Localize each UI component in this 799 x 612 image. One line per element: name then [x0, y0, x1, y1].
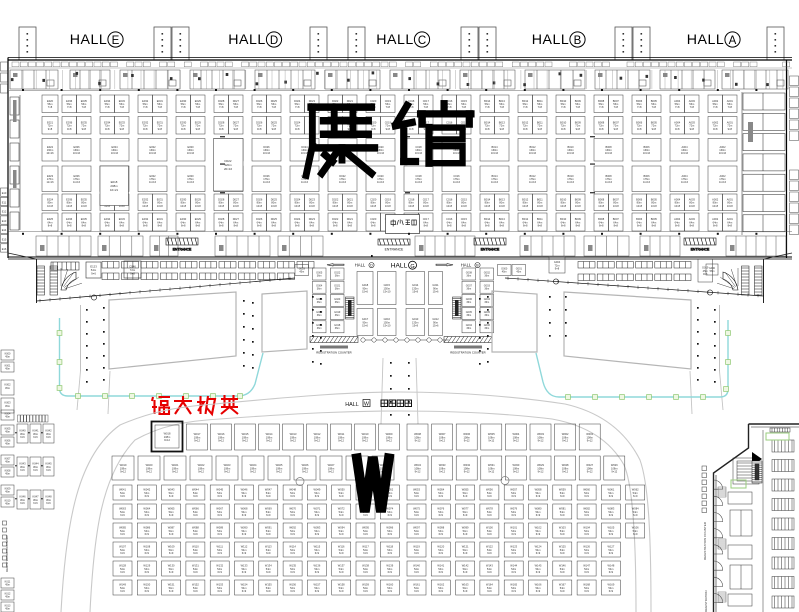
svg-text:6×9: 6×9: [266, 589, 271, 593]
svg-text:6×9: 6×9: [584, 551, 589, 555]
svg-text:15×6: 15×6: [362, 324, 368, 328]
svg-text:9×12: 9×12: [439, 439, 445, 443]
svg-text:6×9: 6×9: [120, 570, 125, 574]
svg-text:6×9: 6×9: [487, 513, 492, 517]
svg-text:7×8: 7×8: [447, 105, 452, 109]
svg-text:6×6: 6×6: [46, 435, 51, 439]
svg-text:10×16: 10×16: [111, 151, 119, 155]
svg-text:6×9: 6×9: [511, 494, 516, 498]
svg-text:6×9: 6×9: [388, 589, 393, 593]
svg-text:36m: 36m: [317, 274, 322, 277]
svg-text:E12: E12: [2, 210, 7, 214]
svg-text:6×9: 6×9: [193, 494, 198, 498]
svg-text:6×6: 6×6: [33, 435, 38, 439]
svg-text:9×12: 9×12: [314, 439, 320, 443]
svg-text:6×9: 6×9: [536, 589, 541, 593]
svg-text:9×8: 9×8: [181, 127, 186, 131]
svg-text:10×8: 10×8: [309, 204, 315, 208]
svg-text:11×16: 11×16: [643, 180, 651, 184]
svg-text:6×9: 6×9: [560, 551, 565, 555]
svg-text:36m: 36m: [335, 327, 340, 330]
svg-text:8×8: 8×8: [196, 224, 201, 228]
svg-text:6×9: 6×9: [217, 532, 222, 536]
svg-text:6×9: 6×9: [560, 589, 565, 593]
svg-text:6×9: 6×9: [145, 532, 150, 536]
svg-text:HALL: HALL: [345, 402, 359, 408]
svg-text:20×16: 20×16: [224, 167, 233, 171]
svg-text:8×8: 8×8: [158, 224, 163, 228]
svg-text:8×8: 8×8: [576, 224, 581, 228]
svg-text:7×8: 7×8: [675, 105, 680, 109]
svg-text:45m: 45m: [5, 490, 10, 493]
svg-text:6×9: 6×9: [315, 551, 320, 555]
svg-text:6×9: 6×9: [536, 513, 541, 517]
svg-text:E14: E14: [2, 228, 7, 232]
svg-text:10×16: 10×16: [719, 151, 727, 155]
svg-text:45m: 45m: [5, 430, 10, 433]
svg-text:6×9: 6×9: [145, 551, 150, 555]
svg-text:9×12: 9×12: [415, 470, 421, 474]
svg-text:11×16: 11×16: [529, 180, 537, 184]
svg-text:9×8: 9×8: [555, 267, 560, 271]
svg-text:E16: E16: [2, 247, 7, 251]
svg-text:6×9: 6×9: [217, 570, 222, 574]
svg-text:D: D: [370, 264, 373, 268]
svg-text:9×12: 9×12: [386, 439, 392, 443]
svg-text:10×8: 10×8: [537, 204, 543, 208]
svg-text:10×8: 10×8: [385, 204, 391, 208]
svg-text:6×9: 6×9: [120, 513, 125, 517]
svg-text:6×6: 6×6: [20, 435, 25, 439]
svg-text:6×9: 6×9: [363, 570, 368, 574]
svg-text:9×8: 9×8: [67, 127, 72, 131]
svg-text:8×8: 8×8: [523, 224, 528, 228]
svg-text:10×16: 10×16: [263, 151, 271, 155]
svg-text:9×12: 9×12: [172, 470, 178, 474]
svg-text:6×9: 6×9: [120, 551, 125, 555]
svg-text:10×8: 10×8: [218, 204, 224, 208]
svg-text:11×16: 11×16: [719, 180, 727, 184]
svg-text:6×9: 6×9: [584, 589, 589, 593]
svg-text:11×16: 11×16: [567, 180, 575, 184]
svg-text:7×8: 7×8: [485, 105, 490, 109]
svg-text:9×8: 9×8: [409, 127, 414, 131]
svg-text:6×9: 6×9: [487, 589, 492, 593]
svg-text:9×8: 9×8: [614, 127, 619, 131]
svg-text:6×9: 6×9: [169, 532, 174, 536]
svg-text:6×9: 6×9: [315, 513, 320, 517]
svg-text:45m: 45m: [5, 386, 10, 390]
svg-text:6×6: 6×6: [46, 468, 51, 472]
svg-text:8×8: 8×8: [333, 224, 338, 228]
svg-text:9×12: 9×12: [218, 439, 224, 443]
svg-text:6×9: 6×9: [463, 513, 468, 517]
svg-text:6×6: 6×6: [20, 501, 25, 505]
svg-text:9×12: 9×12: [146, 470, 152, 474]
svg-text:8×8: 8×8: [637, 224, 642, 228]
svg-text:36m: 36m: [335, 301, 340, 304]
svg-text:10×16: 10×16: [643, 151, 651, 155]
svg-text:7×8: 7×8: [196, 105, 201, 109]
svg-text:10×16: 10×16: [149, 151, 157, 155]
svg-text:36m: 36m: [484, 288, 489, 291]
svg-text:9×8: 9×8: [143, 127, 148, 131]
svg-text:9×8: 9×8: [675, 127, 680, 131]
svg-text:7×8: 7×8: [637, 105, 642, 109]
svg-text:11×16: 11×16: [187, 180, 195, 184]
svg-text:9×12: 9×12: [562, 470, 568, 474]
svg-text:6×9: 6×9: [242, 494, 247, 498]
svg-text:8×8: 8×8: [599, 224, 604, 228]
svg-text:6×6: 6×6: [20, 468, 25, 472]
svg-text:36m: 36m: [317, 314, 322, 317]
svg-text:8×8: 8×8: [219, 224, 224, 228]
svg-text:10×16: 10×16: [681, 151, 689, 155]
svg-text:W: W: [364, 402, 369, 408]
svg-text:E15: E15: [2, 238, 7, 242]
svg-text:6×9: 6×9: [120, 589, 125, 593]
svg-text:6×6: 6×6: [46, 501, 51, 505]
svg-text:8×8: 8×8: [713, 224, 718, 228]
svg-text:9×12: 9×12: [164, 438, 170, 442]
svg-text:6×9: 6×9: [633, 494, 638, 498]
svg-text:9×8: 9×8: [371, 127, 376, 131]
svg-text:45m: 45m: [516, 270, 521, 273]
svg-text:E: E: [112, 35, 120, 47]
svg-text:6×9: 6×9: [290, 532, 295, 536]
svg-text:11×16: 11×16: [681, 180, 689, 184]
svg-text:6×9: 6×9: [217, 589, 222, 593]
svg-text:8×8: 8×8: [424, 224, 429, 228]
svg-text:6×9: 6×9: [536, 494, 541, 498]
svg-text:9×8: 9×8: [485, 127, 490, 131]
svg-text:6×9: 6×9: [120, 494, 125, 498]
svg-text:9×8: 9×8: [257, 127, 262, 131]
svg-text:6×9: 6×9: [193, 532, 198, 536]
svg-text:10×16: 10×16: [605, 151, 613, 155]
svg-text:A: A: [729, 35, 737, 47]
svg-text:36m: 36m: [484, 274, 489, 277]
svg-text:6×9: 6×9: [584, 570, 589, 574]
svg-text:6×9: 6×9: [633, 532, 638, 536]
svg-text:7×8: 7×8: [614, 105, 619, 109]
svg-text:6×9: 6×9: [463, 551, 468, 555]
svg-text:9×12: 9×12: [513, 470, 519, 474]
svg-text:ENTRANCE: ENTRANCE: [173, 248, 192, 252]
svg-text:10×16: 10×16: [415, 151, 423, 155]
svg-text:45m: 45m: [5, 502, 10, 505]
svg-text:6×9: 6×9: [363, 589, 368, 593]
svg-text:36m: 36m: [317, 288, 322, 291]
svg-text:9×12: 9×12: [290, 439, 296, 443]
svg-text:11×16: 11×16: [453, 180, 461, 184]
svg-text:6×9: 6×9: [584, 532, 589, 536]
svg-text:8×8: 8×8: [500, 224, 505, 228]
svg-text:E11: E11: [2, 200, 7, 204]
svg-text:9×8: 9×8: [272, 127, 277, 131]
svg-text:6×9: 6×9: [439, 570, 444, 574]
svg-text:9×12: 9×12: [611, 470, 617, 474]
svg-text:6×9: 6×9: [414, 513, 419, 517]
svg-text:8×8: 8×8: [295, 224, 300, 228]
svg-text:6×9: 6×9: [487, 494, 492, 498]
svg-text:10×8: 10×8: [522, 204, 528, 208]
svg-text:10×8: 10×8: [446, 204, 452, 208]
svg-text:10×8: 10×8: [727, 204, 733, 208]
svg-text:6×9: 6×9: [388, 551, 393, 555]
svg-text:9×12: 9×12: [198, 470, 204, 474]
svg-text:REGISTRATION COUNTER: REGISTRATION COUNTER: [5, 535, 9, 572]
svg-text:6×9: 6×9: [560, 570, 565, 574]
svg-text:9×12: 9×12: [194, 439, 200, 443]
svg-text:HALL: HALL: [228, 32, 266, 48]
svg-text:9×12: 9×12: [328, 470, 334, 474]
svg-text:10×8: 10×8: [294, 204, 300, 208]
svg-text:6×9: 6×9: [290, 570, 295, 574]
svg-text:36m: 36m: [466, 301, 471, 304]
svg-text:45m: 45m: [5, 583, 10, 586]
svg-text:6×9: 6×9: [339, 513, 344, 517]
svg-text:6×9: 6×9: [315, 570, 320, 574]
svg-text:9×12: 9×12: [488, 439, 494, 443]
svg-text:8×8: 8×8: [310, 224, 315, 228]
svg-text:15×10: 15×10: [383, 290, 391, 294]
svg-text:6×9: 6×9: [463, 589, 468, 593]
svg-text:36m: 36m: [466, 274, 471, 277]
svg-text:6×9: 6×9: [511, 551, 516, 555]
svg-text:7×8: 7×8: [500, 105, 505, 109]
svg-text:10×8: 10×8: [332, 204, 338, 208]
svg-text:6×9: 6×9: [193, 589, 198, 593]
svg-text:6×9: 6×9: [266, 570, 271, 574]
svg-text:10×16: 10×16: [73, 151, 81, 155]
svg-text:6×9: 6×9: [487, 570, 492, 574]
svg-text:9×12: 9×12: [439, 470, 445, 474]
svg-text:9×8: 9×8: [523, 127, 528, 131]
svg-text:10×8: 10×8: [651, 204, 657, 208]
svg-text:6×9: 6×9: [560, 532, 565, 536]
svg-text:8×8: 8×8: [728, 224, 733, 228]
svg-text:E13: E13: [2, 219, 7, 223]
svg-text:9×8: 9×8: [637, 127, 642, 131]
svg-text:10×8: 10×8: [256, 204, 262, 208]
svg-text:6×9: 6×9: [193, 551, 198, 555]
svg-text:45m: 45m: [5, 367, 10, 370]
svg-text:10×8: 10×8: [461, 204, 467, 208]
svg-text:9×12: 9×12: [302, 470, 308, 474]
svg-text:6×9: 6×9: [536, 551, 541, 555]
svg-text:9×8: 9×8: [219, 127, 224, 131]
svg-text:9×12: 9×12: [538, 439, 544, 443]
svg-text:36m: 36m: [317, 301, 322, 304]
svg-text:9×6: 9×6: [91, 272, 96, 276]
svg-text:8×8: 8×8: [82, 224, 87, 228]
svg-text:6×9: 6×9: [145, 494, 150, 498]
svg-text:6×9: 6×9: [339, 570, 344, 574]
svg-text:8×8: 8×8: [652, 224, 657, 228]
svg-text:15×6: 15×6: [362, 290, 368, 294]
svg-text:HALL: HALL: [391, 263, 408, 270]
svg-text:10×16: 10×16: [377, 151, 385, 155]
svg-text:7×8: 7×8: [158, 105, 163, 109]
svg-text:10×8: 10×8: [674, 204, 680, 208]
svg-text:9×8: 9×8: [538, 127, 543, 131]
svg-text:9×8: 9×8: [120, 127, 125, 131]
svg-text:10×8: 10×8: [613, 204, 619, 208]
svg-text:9×8: 9×8: [82, 127, 87, 131]
svg-text:6×9: 6×9: [609, 513, 614, 517]
svg-text:9×12: 9×12: [120, 470, 126, 474]
svg-text:6×9: 6×9: [242, 532, 247, 536]
svg-text:6×9: 6×9: [560, 513, 565, 517]
svg-text:6×9: 6×9: [290, 513, 295, 517]
svg-text:6×9: 6×9: [388, 513, 393, 517]
svg-text:10×8: 10×8: [157, 204, 163, 208]
svg-text:10×8: 10×8: [271, 204, 277, 208]
svg-text:6×9: 6×9: [290, 551, 295, 555]
svg-text:9×8: 9×8: [386, 127, 391, 131]
svg-text:7×8: 7×8: [143, 105, 148, 109]
svg-text:9×12: 9×12: [250, 470, 256, 474]
svg-text:6×9: 6×9: [363, 532, 368, 536]
svg-text:8×8: 8×8: [105, 224, 110, 228]
svg-text:6×9: 6×9: [414, 494, 419, 498]
svg-text:6×6: 6×6: [33, 501, 38, 505]
svg-text:7×8: 7×8: [599, 105, 604, 109]
svg-text:6×9: 6×9: [511, 513, 516, 517]
svg-text:6×9: 6×9: [315, 532, 320, 536]
svg-text:10×16: 10×16: [187, 151, 195, 155]
svg-text:7×8: 7×8: [538, 105, 543, 109]
svg-text:HALL: HALL: [355, 263, 366, 268]
svg-text:8×8: 8×8: [675, 224, 680, 228]
svg-text:REGISTRATION: REGISTRATION: [704, 591, 708, 612]
svg-text:6×9: 6×9: [560, 494, 565, 498]
svg-text:6×9: 6×9: [339, 551, 344, 555]
svg-text:36m: 36m: [466, 288, 471, 291]
svg-text:36m: 36m: [484, 314, 489, 317]
svg-text:9×8: 9×8: [105, 127, 110, 131]
svg-text:6×9: 6×9: [169, 494, 174, 498]
svg-text:ENTRANCE: ENTRANCE: [385, 248, 404, 252]
svg-text:45m: 45m: [502, 270, 507, 273]
svg-text:36m: 36m: [466, 314, 471, 317]
svg-text:HALL: HALL: [70, 32, 108, 48]
svg-text:9×8: 9×8: [158, 127, 163, 131]
svg-text:6×9: 6×9: [266, 513, 271, 517]
svg-text:6×9: 6×9: [242, 589, 247, 593]
svg-text:45m: 45m: [5, 442, 10, 445]
svg-text:7×8: 7×8: [295, 105, 300, 109]
svg-text:G: G: [410, 264, 414, 270]
svg-text:8×8: 8×8: [485, 224, 490, 228]
svg-text:7×8: 7×8: [576, 105, 581, 109]
svg-text:10×8: 10×8: [233, 204, 239, 208]
svg-text:6×9: 6×9: [363, 551, 368, 555]
svg-text:6×9: 6×9: [439, 551, 444, 555]
svg-text:ENTRANCE: ENTRANCE: [691, 248, 710, 252]
svg-text:9×8: 9×8: [295, 127, 300, 131]
svg-text:8×8: 8×8: [181, 224, 186, 228]
svg-text:8×8: 8×8: [67, 224, 72, 228]
svg-text:6×9: 6×9: [315, 589, 320, 593]
svg-text:8×8: 8×8: [561, 224, 566, 228]
svg-text:6×9: 6×9: [120, 532, 125, 536]
svg-text:6×9: 6×9: [439, 532, 444, 536]
svg-text:9×12: 9×12: [464, 470, 470, 474]
svg-text:9×8: 9×8: [652, 127, 657, 131]
svg-text:7×8: 7×8: [181, 105, 186, 109]
svg-text:HALL: HALL: [376, 32, 414, 48]
svg-text:6×9: 6×9: [169, 570, 174, 574]
svg-text:10×8: 10×8: [689, 204, 695, 208]
svg-text:6×9: 6×9: [145, 570, 150, 574]
svg-text:6×9: 6×9: [193, 513, 198, 517]
svg-text:9×8: 9×8: [48, 127, 53, 131]
svg-text:7×8: 7×8: [82, 105, 87, 109]
svg-text:8×8: 8×8: [538, 224, 543, 228]
svg-text:7×8: 7×8: [67, 105, 72, 109]
svg-text:11×16: 11×16: [149, 180, 157, 184]
svg-text:9×8: 9×8: [728, 127, 733, 131]
svg-text:6×9: 6×9: [217, 513, 222, 517]
svg-text:10×8: 10×8: [499, 204, 505, 208]
svg-text:10×8: 10×8: [484, 204, 490, 208]
svg-text:10×8: 10×8: [575, 204, 581, 208]
svg-text:45m: 45m: [5, 355, 10, 358]
svg-text:6×9: 6×9: [609, 589, 614, 593]
svg-text:6×9: 6×9: [414, 570, 419, 574]
svg-text:11×16: 11×16: [46, 180, 54, 184]
svg-text:6×6: 6×6: [33, 468, 38, 472]
svg-text:6×9: 6×9: [169, 589, 174, 593]
svg-text:9×8: 9×8: [196, 127, 201, 131]
svg-text:45m: 45m: [5, 404, 10, 408]
svg-text:9×12: 9×12: [538, 470, 544, 474]
svg-text:9×8: 9×8: [561, 127, 566, 131]
svg-text:7×8: 7×8: [219, 105, 224, 109]
svg-text:7×8: 7×8: [105, 105, 110, 109]
svg-text:8×8: 8×8: [371, 224, 376, 228]
svg-text:10×8: 10×8: [370, 204, 376, 208]
svg-text:6×9: 6×9: [511, 570, 516, 574]
svg-text:6×9: 6×9: [315, 494, 320, 498]
svg-text:10×8: 10×8: [560, 204, 566, 208]
svg-text:10×8: 10×8: [423, 204, 429, 208]
svg-text:10×8: 10×8: [81, 204, 87, 208]
svg-text:6×9: 6×9: [536, 532, 541, 536]
svg-text:11×16: 11×16: [263, 180, 271, 184]
svg-text:11×16: 11×16: [415, 180, 423, 184]
svg-text:6×9: 6×9: [193, 570, 198, 574]
svg-text:7×8: 7×8: [257, 105, 262, 109]
svg-text:7×8: 7×8: [272, 105, 277, 109]
svg-text:8×8: 8×8: [120, 224, 125, 228]
svg-text:11×16: 11×16: [73, 180, 81, 184]
svg-text:45m: 45m: [5, 595, 10, 598]
svg-text:ENTRANCE: ENTRANCE: [481, 248, 500, 252]
svg-text:7×8: 7×8: [713, 105, 718, 109]
svg-text:6×9: 6×9: [511, 589, 516, 593]
svg-text:6×9: 6×9: [463, 570, 468, 574]
svg-text:E10: E10: [2, 191, 7, 195]
svg-text:9×8: 9×8: [234, 127, 239, 131]
svg-text:8×8: 8×8: [143, 224, 148, 228]
svg-text:9×12: 9×12: [338, 439, 344, 443]
svg-text:6×9: 6×9: [439, 494, 444, 498]
svg-text:9×12: 9×12: [513, 439, 519, 443]
svg-text:6×9: 6×9: [609, 551, 614, 555]
